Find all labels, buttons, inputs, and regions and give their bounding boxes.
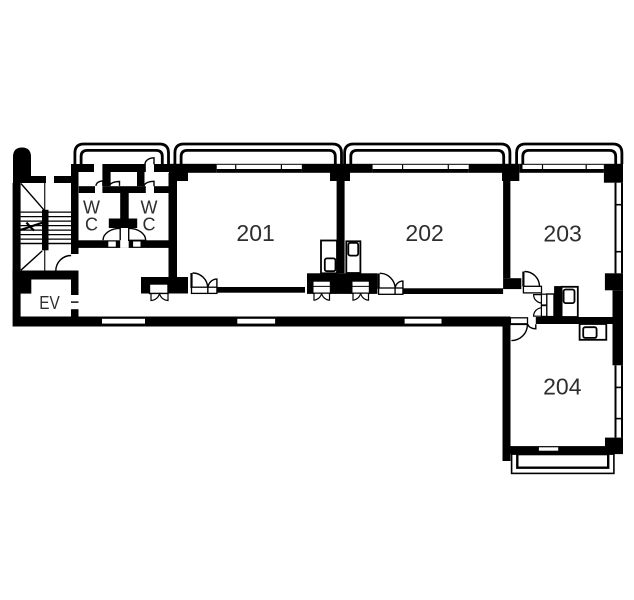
svg-text:202: 202 (405, 220, 443, 246)
svg-text:C: C (85, 215, 98, 235)
svg-text:EV: EV (39, 293, 60, 313)
svg-text:203: 203 (543, 221, 581, 247)
svg-text:201: 201 (236, 220, 274, 246)
svg-text:204: 204 (543, 374, 582, 400)
svg-text:C: C (143, 215, 156, 235)
